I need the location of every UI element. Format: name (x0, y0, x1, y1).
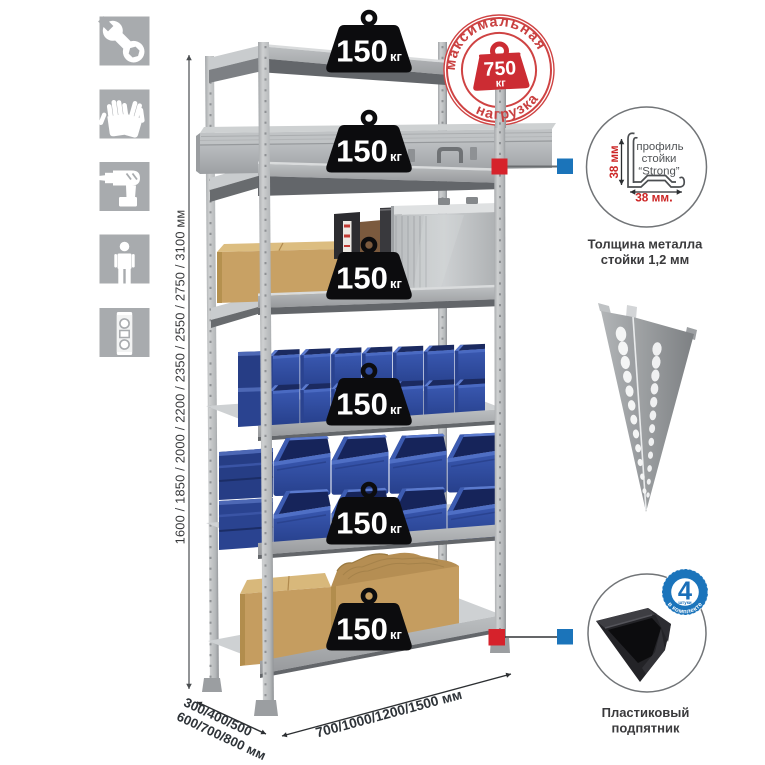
svg-text:стойки: стойки (642, 153, 677, 165)
svg-text:38 мм.: 38 мм. (635, 190, 672, 205)
svg-text:штуки: штуки (678, 600, 692, 605)
svg-text:стойки 1,2 мм: стойки 1,2 мм (601, 252, 689, 267)
svg-text:38 мм: 38 мм (609, 145, 621, 178)
svg-text:Толщина металла: Толщина металла (588, 237, 703, 252)
svg-text:подпятник: подпятник (611, 721, 680, 736)
svg-text:кг: кг (495, 77, 506, 90)
svg-text:профиль: профиль (636, 141, 683, 153)
svg-text:1600 / 1850 / 2000 / 2200 / 23: 1600 / 1850 / 2000 / 2200 / 2350 / 2550 … (173, 210, 188, 545)
svg-text:Пластиковый: Пластиковый (602, 705, 690, 720)
svg-text:“Strong”: “Strong” (638, 166, 679, 178)
